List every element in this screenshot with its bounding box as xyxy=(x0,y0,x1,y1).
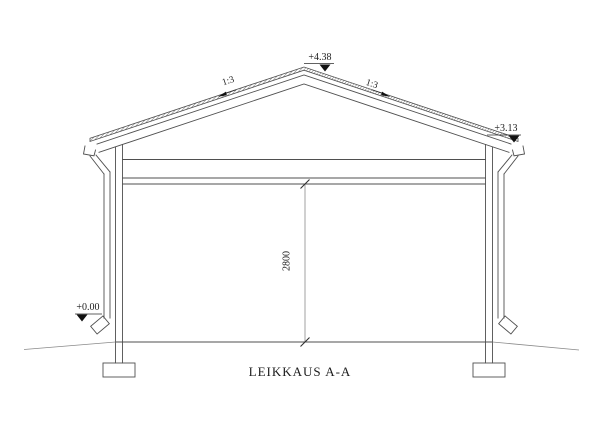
gutter-left xyxy=(84,146,96,156)
ground-elevation-marker-left: +0.00 xyxy=(75,302,102,322)
wall-right xyxy=(486,145,493,343)
gutter-right xyxy=(513,146,525,156)
wall-left xyxy=(116,145,123,343)
foundation-left xyxy=(103,342,135,377)
drawing-sheet: +4.38 +3.13 +0.00 1:3 1:3 2800 LEIKKAUS … xyxy=(0,0,600,424)
ridge-elevation-label: +4.38 xyxy=(308,52,331,63)
section-a-a-drawing: +4.38 +3.13 +0.00 1:3 1:3 2800 LEIKKAUS … xyxy=(0,0,600,424)
downspout-right xyxy=(498,155,518,334)
drawing-title: LEIKKAUS A-A xyxy=(249,364,352,379)
eave-elevation-label: +3.13 xyxy=(494,123,517,134)
roof-slope-left-label: 1:3 xyxy=(221,75,236,88)
ground-line-left xyxy=(24,342,116,350)
interior-beam xyxy=(123,178,486,184)
roof-covering-band xyxy=(90,67,518,142)
ground-elevation-arrow-icon xyxy=(77,315,88,322)
ridge-elevation-arrow-icon xyxy=(320,65,331,72)
foundation-right xyxy=(473,342,505,377)
ground-elevation-label: +0.00 xyxy=(76,302,99,313)
roof-sheathing-line xyxy=(97,75,511,144)
ground-line-right xyxy=(493,342,580,350)
interior-height-dimension-label: 2800 xyxy=(282,251,293,271)
